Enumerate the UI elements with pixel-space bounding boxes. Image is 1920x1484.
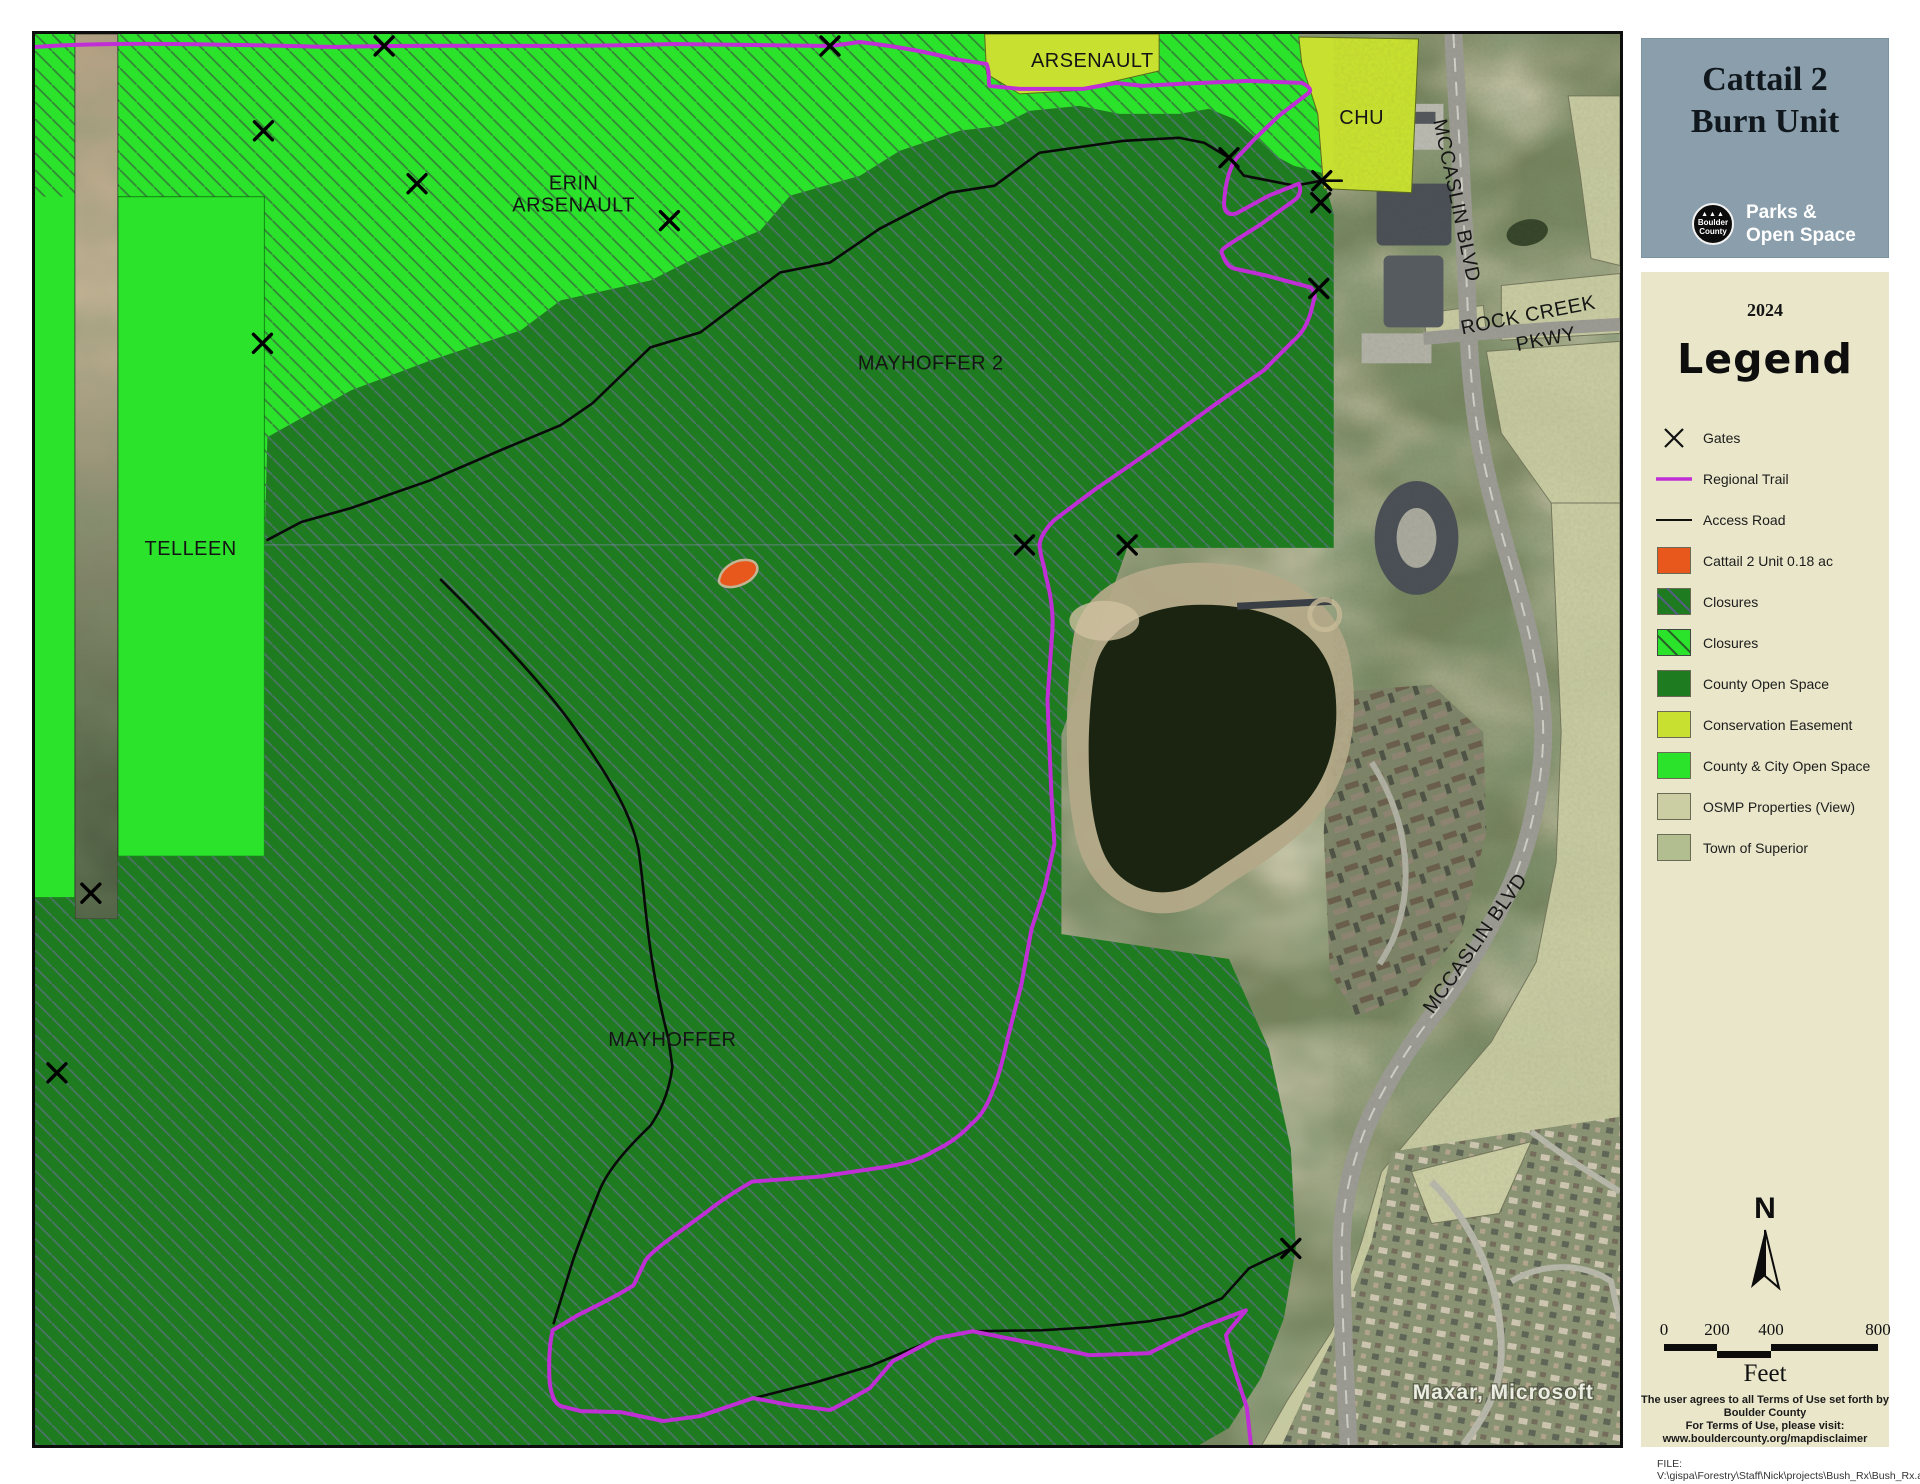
- trail-line-icon: [1653, 474, 1695, 484]
- department-name: Parks & Open Space: [1746, 201, 1856, 247]
- legend-item-label: Conservation Easement: [1695, 717, 1852, 733]
- legend-item-access-road: Access Road: [1641, 499, 1889, 540]
- logo-line2: County: [1699, 227, 1727, 236]
- road-line-icon: [1653, 515, 1695, 525]
- label-mayhoffer: MAYHOFFER: [608, 1029, 736, 1051]
- telleen-parcel: [118, 197, 265, 857]
- legend-items: Gates Regional Trail Access Road Cattai: [1641, 417, 1889, 868]
- legend-item-closures-light: Closures: [1641, 622, 1889, 663]
- north-arrow-icon: [1743, 1226, 1787, 1294]
- label-erin-line1: ERIN: [549, 173, 599, 195]
- title-line1: Cattail 2: [1642, 59, 1888, 101]
- map-canvas: ARSENAULT CHU ERIN ARSENAULT MAYHOFFER 2…: [32, 31, 1623, 1448]
- cattail2-swatch: [1653, 547, 1695, 574]
- legend-item-label: Closures: [1695, 594, 1758, 610]
- closures-dark-swatch: [1653, 588, 1695, 615]
- closures-light-swatch: [1653, 629, 1695, 656]
- legend-item-label: County Open Space: [1695, 676, 1829, 692]
- scale-tick-400: 400: [1758, 1320, 1784, 1340]
- legend-item-gates: Gates: [1641, 417, 1889, 458]
- page: ARSENAULT CHU ERIN ARSENAULT MAYHOFFER 2…: [0, 0, 1920, 1484]
- agency-branding: ▲▲▲ Boulder County Parks & Open Space: [1692, 201, 1856, 247]
- legend-item-conservation-easement: Conservation Easement: [1641, 704, 1889, 745]
- legend-heading: Legend: [1641, 335, 1889, 383]
- county-open-space-swatch: [1653, 670, 1695, 697]
- town-of-superior-swatch: [1653, 834, 1695, 861]
- label-arsenault: ARSENAULT: [1031, 50, 1154, 72]
- terms-disclaimer: The user agrees to all Terms of Use set …: [1641, 1394, 1889, 1446]
- boulder-county-logo: ▲▲▲ Boulder County: [1692, 203, 1734, 245]
- gate-x-icon: [1653, 426, 1695, 450]
- county-city-open-space-swatch: [1653, 752, 1695, 779]
- legend-item-label: Cattail 2 Unit 0.18 ac: [1695, 553, 1833, 569]
- legend-item-county-open-space: County Open Space: [1641, 663, 1889, 704]
- label-erin-line2: ARSENAULT: [512, 195, 635, 217]
- legend-item-town-of-superior: Town of Superior: [1641, 827, 1889, 868]
- dept-line2: Open Space: [1746, 224, 1856, 247]
- legend-year: 2024: [1641, 300, 1889, 321]
- north-label: N: [1641, 1192, 1889, 1226]
- title-line2: Burn Unit: [1642, 101, 1888, 143]
- satellite-grain: [1334, 34, 1620, 1445]
- page-title: Cattail 2 Burn Unit: [1642, 59, 1888, 143]
- map-svg: ARSENAULT CHU ERIN ARSENAULT MAYHOFFER 2…: [35, 34, 1620, 1445]
- legend-item-cattail2-unit: Cattail 2 Unit 0.18 ac: [1641, 540, 1889, 581]
- legend-item-label: Gates: [1695, 430, 1740, 446]
- legend-item-label: Town of Superior: [1695, 840, 1808, 856]
- label-telleen: TELLEEN: [145, 538, 237, 560]
- scale-bar-segment: [1717, 1351, 1771, 1358]
- legend-item-label: OSMP Properties (View): [1695, 799, 1855, 815]
- scale-bar-segment: [1771, 1344, 1878, 1351]
- legend-item-label: Regional Trail: [1695, 471, 1789, 487]
- disclaimer-line1: The user agrees to all Terms of Use set …: [1641, 1394, 1889, 1420]
- dept-line1: Parks &: [1746, 201, 1856, 224]
- file-path-note: FILE: V:\gispa\Forestry\Staff\Nick\proje…: [1641, 1458, 1889, 1482]
- disclaimer-line2: For Terms of Use, please visit: www.boul…: [1641, 1420, 1889, 1446]
- legend-panel: 2024 Legend Gates Regional Trail Acce: [1641, 272, 1889, 1447]
- legend-item-osmp-properties: OSMP Properties (View): [1641, 786, 1889, 827]
- scale-bar: 0 200 400 800 Feet: [1641, 1320, 1889, 1380]
- logo-line1: Boulder: [1698, 218, 1728, 227]
- legend-item-label: Closures: [1695, 635, 1758, 651]
- label-mayhoffer2: MAYHOFFER 2: [858, 352, 1004, 374]
- scale-bar-segment: [1664, 1344, 1717, 1351]
- scale-tick-0: 0: [1660, 1320, 1669, 1340]
- conservation-easement-swatch: [1653, 711, 1695, 738]
- west-open-space-sliver: [35, 197, 75, 900]
- legend-item-closures-dark: Closures: [1641, 581, 1889, 622]
- scale-tick-800: 800: [1865, 1320, 1891, 1340]
- dirt-road-strip: [75, 34, 118, 919]
- legend-footer: N 0 200 400 800 Feet The user agrees to …: [1641, 1192, 1889, 1482]
- legend-item-regional-trail: Regional Trail: [1641, 458, 1889, 499]
- legend-item-label: Access Road: [1695, 512, 1785, 528]
- scale-unit-label: Feet: [1641, 1360, 1889, 1388]
- scale-tick-200: 200: [1704, 1320, 1730, 1340]
- osmp-properties-swatch: [1653, 793, 1695, 820]
- title-panel: Cattail 2 Burn Unit ▲▲▲ Boulder County P…: [1641, 38, 1889, 258]
- legend-item-label: County & City Open Space: [1695, 758, 1870, 774]
- legend-item-county-city-open-space: County & City Open Space: [1641, 745, 1889, 786]
